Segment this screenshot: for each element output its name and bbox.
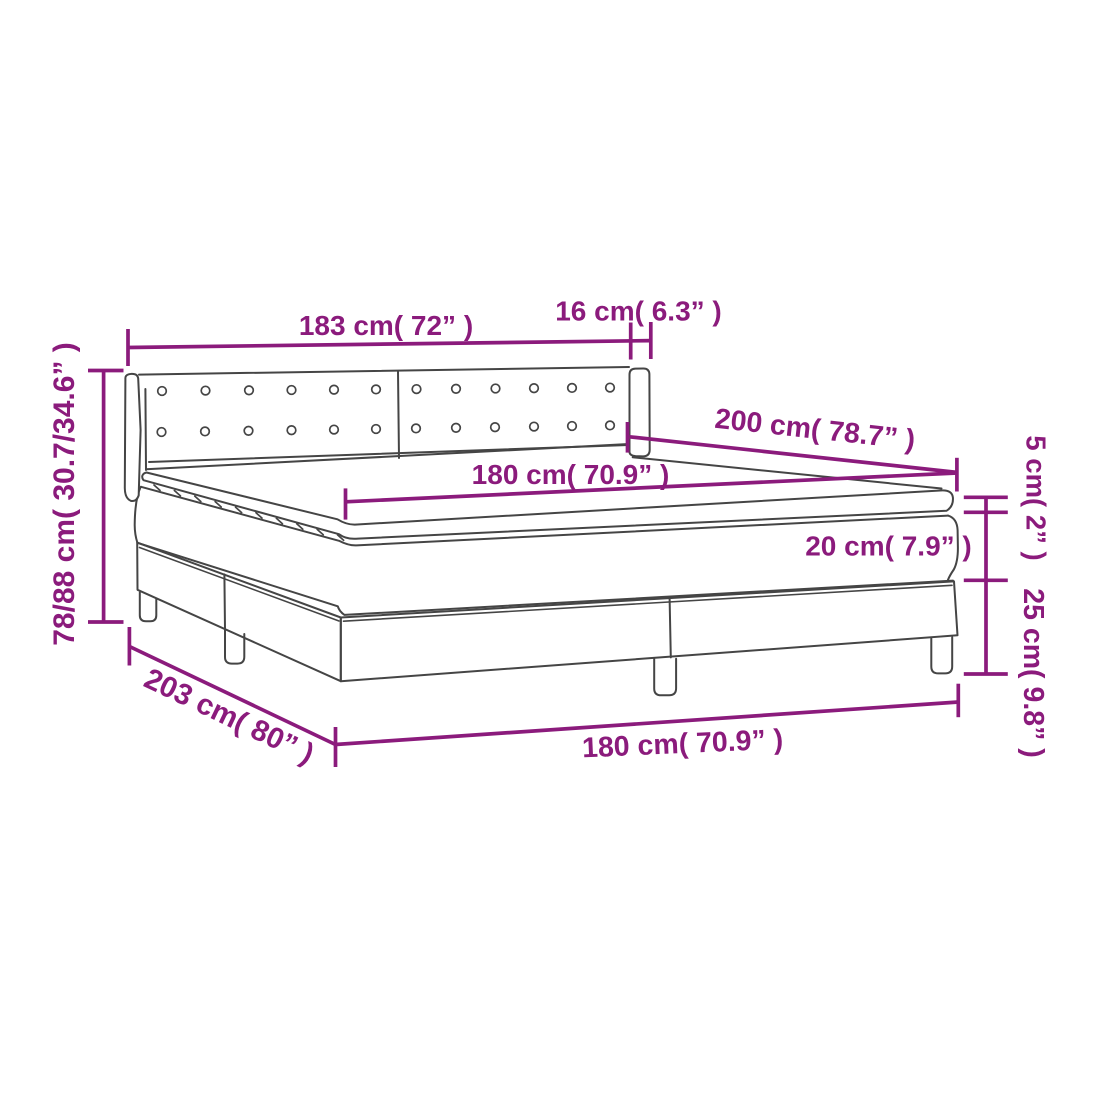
- svg-text:180 cm( 70.9” ): 180 cm( 70.9” ): [581, 724, 783, 765]
- svg-text:16 cm( 6.3” ): 16 cm( 6.3” ): [555, 296, 722, 327]
- svg-text:183 cm( 72” ): 183 cm( 72” ): [299, 310, 473, 341]
- svg-text:180 cm( 70.9” ): 180 cm( 70.9” ): [472, 459, 670, 490]
- svg-text:5 cm( 2” ): 5 cm( 2” ): [1021, 435, 1052, 560]
- svg-text:20 cm( 7.9” ): 20 cm( 7.9” ): [805, 531, 972, 562]
- svg-text:78/88 cm( 30.7/34.6” ): 78/88 cm( 30.7/34.6” ): [48, 342, 81, 646]
- svg-text:25 cm( 9.8” ): 25 cm( 9.8” ): [1017, 588, 1049, 758]
- svg-text:203 cm( 80” ): 203 cm( 80” ): [139, 662, 319, 771]
